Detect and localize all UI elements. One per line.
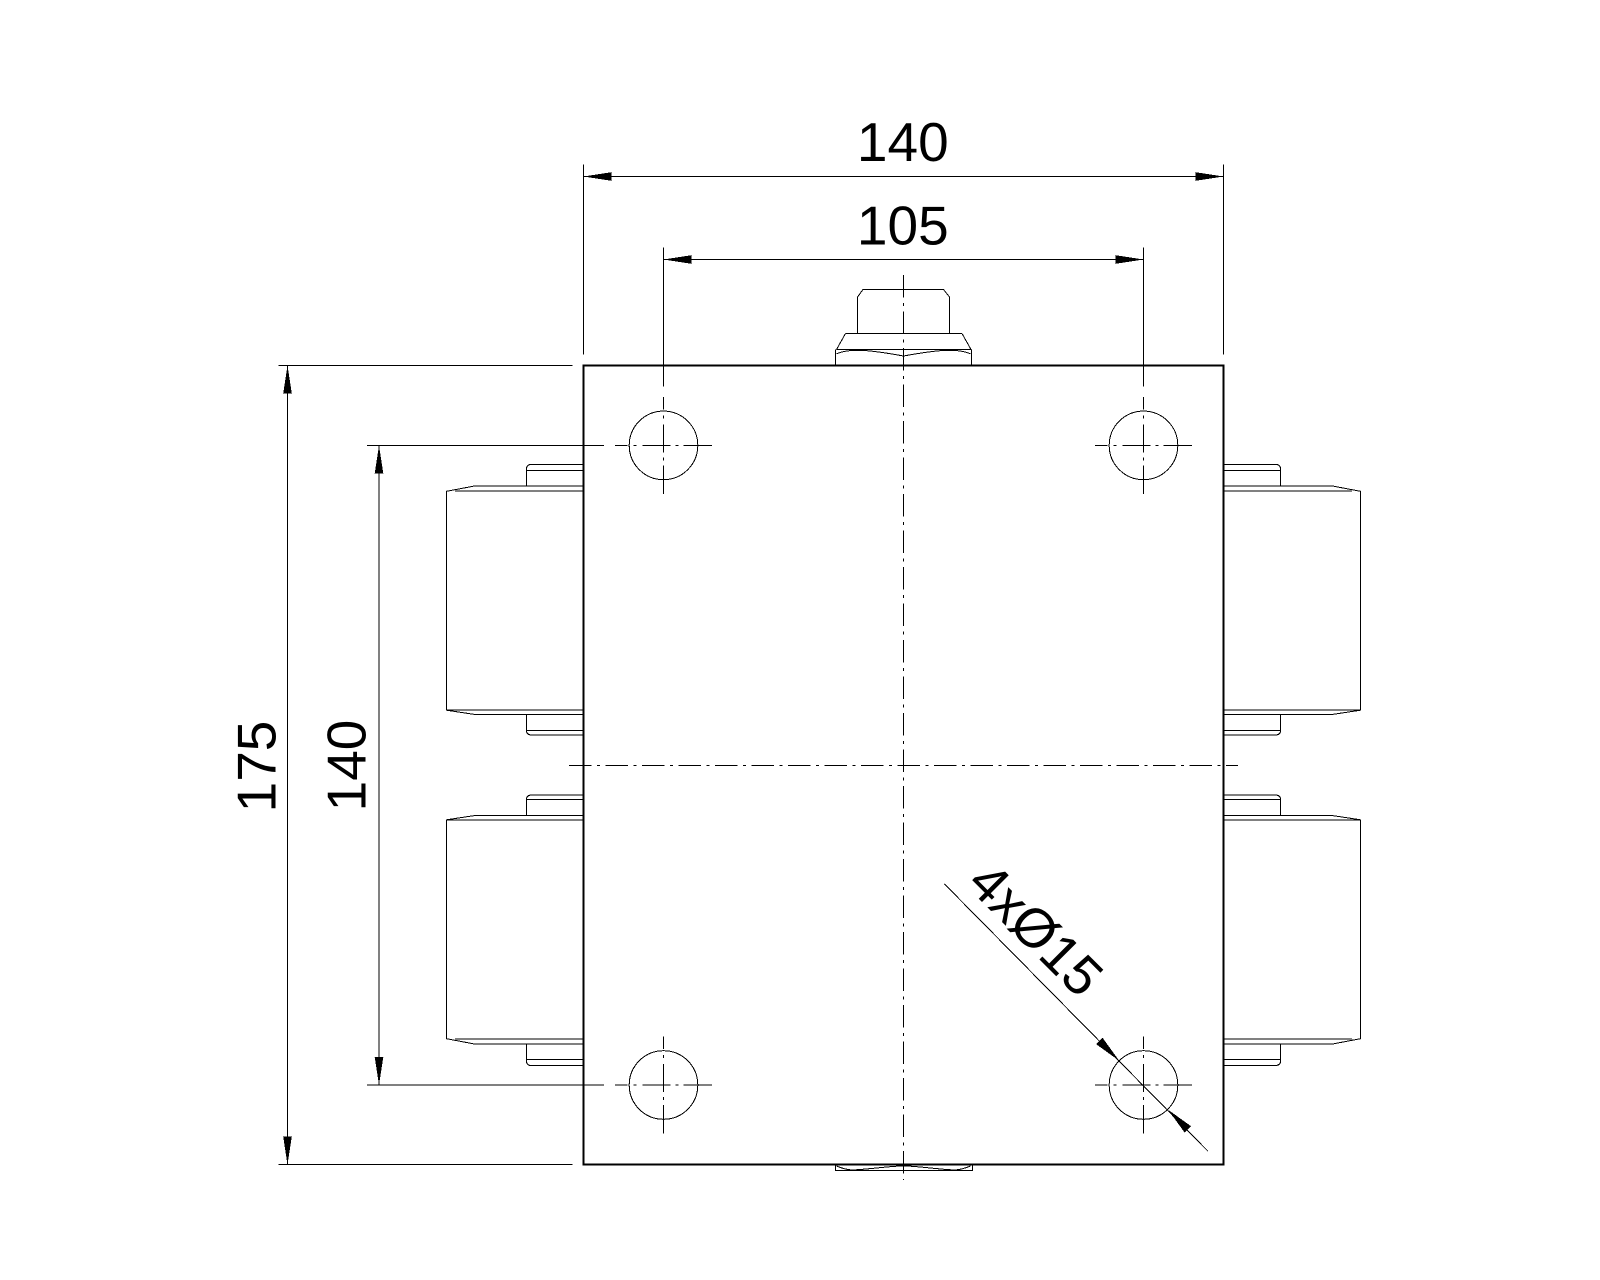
svg-text:140: 140 (315, 720, 377, 812)
svg-text:140: 140 (857, 111, 949, 173)
svg-text:105: 105 (857, 195, 949, 257)
svg-text:175: 175 (225, 721, 287, 813)
